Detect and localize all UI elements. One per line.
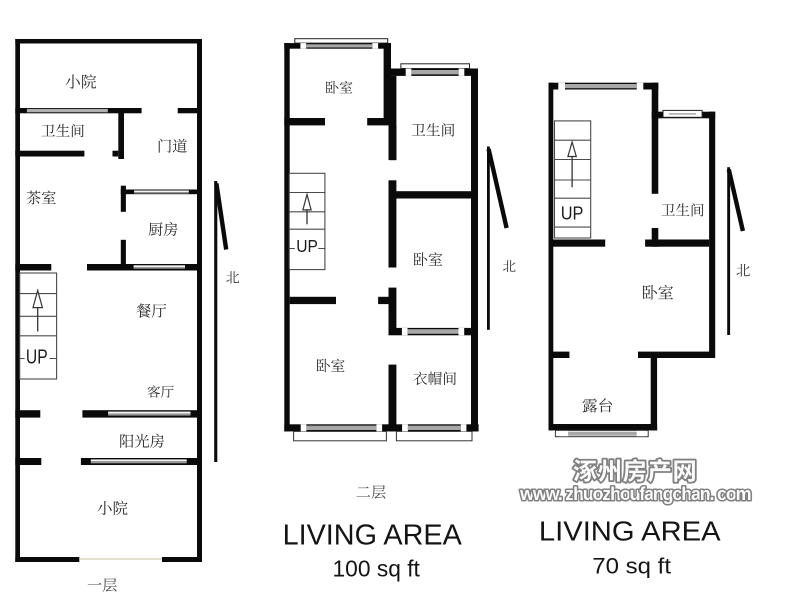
svg-text:UP: UP xyxy=(561,203,584,223)
svg-text:LIVING AREA: LIVING AREA xyxy=(539,516,721,547)
svg-text:LIVING AREA: LIVING AREA xyxy=(283,519,462,551)
svg-text:100 sq ft: 100 sq ft xyxy=(333,556,421,582)
svg-text:UP: UP xyxy=(296,236,318,256)
svg-text:UP: UP xyxy=(26,346,48,368)
svg-text:70 sq ft: 70 sq ft xyxy=(592,554,671,579)
svg-text:www. zhuozhoufangchan. com: www. zhuozhoufangchan. com xyxy=(519,484,752,504)
